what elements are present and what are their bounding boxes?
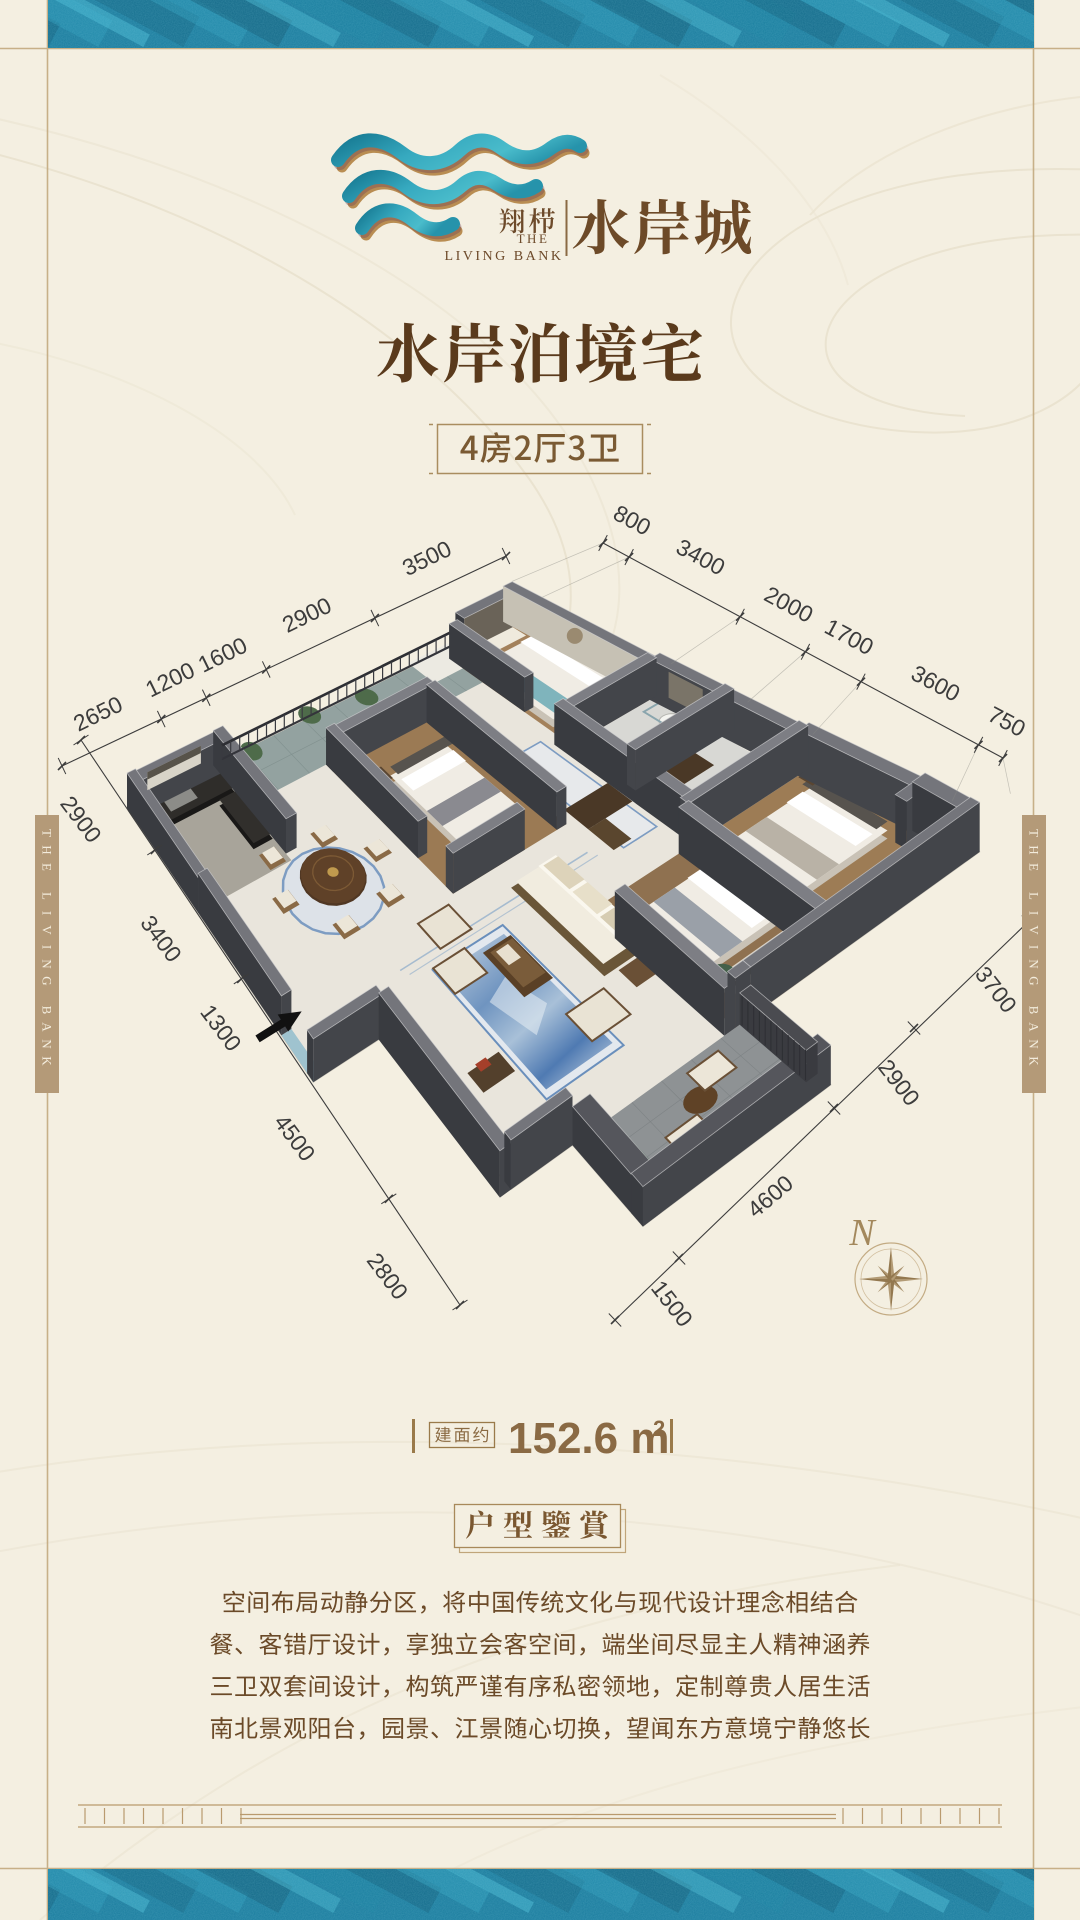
svg-text:A: A (1027, 1022, 1042, 1032)
svg-text:2900: 2900 (55, 791, 107, 848)
svg-text:K: K (40, 1056, 55, 1066)
svg-text:1600: 1600 (194, 632, 251, 678)
svg-text:K: K (1027, 1056, 1042, 1066)
svg-text:H: H (40, 845, 55, 854)
svg-text:I: I (1027, 911, 1042, 915)
svg-text:2: 2 (653, 1416, 665, 1441)
svg-text:1700: 1700 (821, 613, 878, 660)
svg-text:I: I (1027, 945, 1042, 949)
svg-text:E: E (40, 863, 55, 871)
svg-text:1300: 1300 (195, 999, 247, 1056)
svg-text:G: G (1027, 976, 1042, 985)
svg-text:I: I (40, 911, 55, 915)
svg-text:N: N (40, 1039, 55, 1049)
svg-text:T: T (40, 829, 55, 837)
svg-text:G: G (40, 976, 55, 985)
svg-text:152.6 m: 152.6 m (508, 1414, 669, 1463)
svg-text:N: N (1027, 959, 1042, 969)
svg-text:2000: 2000 (760, 581, 817, 628)
svg-text:B: B (40, 1006, 55, 1015)
svg-text:E: E (1027, 863, 1042, 871)
svg-text:N: N (40, 959, 55, 969)
svg-text:N: N (848, 1212, 877, 1254)
svg-text:4500: 4500 (269, 1109, 321, 1166)
svg-text:A: A (40, 1022, 55, 1032)
svg-text:4600: 4600 (742, 1170, 798, 1223)
svg-text:V: V (40, 925, 55, 935)
svg-text:3500: 3500 (398, 535, 455, 581)
svg-text:2900: 2900 (278, 592, 335, 638)
svg-text:L: L (40, 892, 55, 900)
svg-text:2650: 2650 (69, 691, 126, 737)
svg-text:L: L (1027, 892, 1042, 900)
svg-text:3400: 3400 (672, 533, 729, 580)
svg-text:3400: 3400 (135, 910, 187, 967)
svg-text:750: 750 (984, 701, 1030, 742)
svg-text:N: N (1027, 1039, 1042, 1049)
svg-text:1500: 1500 (646, 1275, 698, 1331)
svg-text:800: 800 (609, 500, 655, 541)
svg-text:T: T (1027, 829, 1042, 837)
svg-text:3600: 3600 (907, 660, 964, 707)
svg-text:2900: 2900 (873, 1054, 925, 1110)
svg-text:1200: 1200 (141, 657, 198, 703)
svg-text:I: I (40, 945, 55, 949)
svg-text:V: V (1027, 925, 1042, 935)
svg-text:H: H (1027, 845, 1042, 854)
svg-text:B: B (1027, 1006, 1042, 1015)
svg-text:2800: 2800 (362, 1248, 414, 1305)
